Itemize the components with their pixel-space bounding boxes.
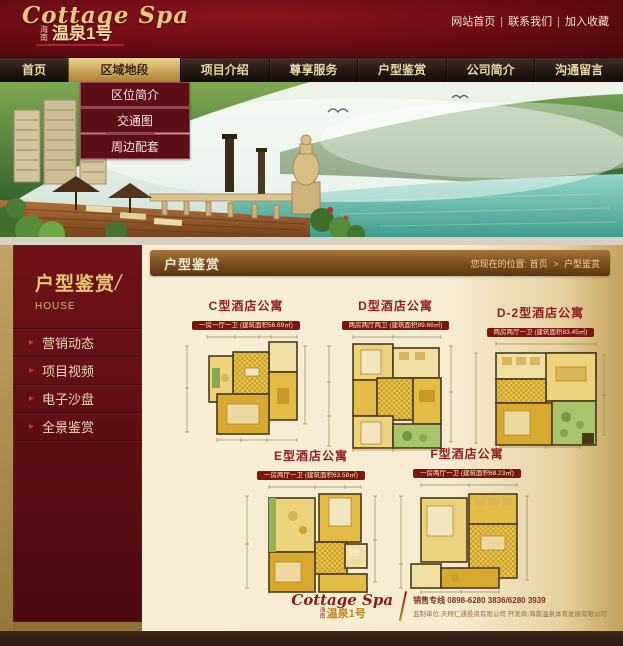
floorplan-f-image[interactable] [397, 480, 537, 596]
site-logo[interactable]: Cottage Spa 海南 温泉1号 [22, 4, 189, 46]
floorplan-card-d: D型酒店公寓 两房两厅两卫 (建筑面积89.66㎡) [322, 297, 469, 454]
page: Cottage Spa 海南 温泉1号 网站首页|联系我们|加入收藏 首页 区域… [0, 0, 623, 646]
breadcrumb-current: 户型鉴赏 [564, 259, 600, 269]
sidebar-title-block: 户型鉴赏/ HOUSE [13, 245, 142, 329]
dropdown-item-area-intro[interactable]: 区位简介 [80, 82, 190, 107]
floorplan-f-title: F型酒店公寓 [396, 445, 538, 462]
floorplan-card-c: C型酒店公寓 一房一厅一卫 (建筑面积56.69㎡) [180, 297, 312, 444]
floorplan-f-subtitle: 一房两厅一卫 (建筑面积68.23㎡) [413, 469, 521, 478]
nav-dropdown-location: 区位简介 交通图 周边配套 [80, 82, 190, 160]
breadcrumb: 您现在的位置: 首页 > 户型鉴赏 [471, 257, 600, 270]
breadcrumb-home[interactable]: 首页 [530, 259, 548, 269]
footer-logo-script: Cottage Spa [291, 593, 393, 608]
footer-logo-name: 温泉1号 [327, 609, 366, 620]
link-favorite[interactable]: 加入收藏 [565, 16, 609, 28]
floorplan-d2-subtitle: 两房两厅一卫 (建筑面积83.45㎡) [487, 328, 595, 337]
floorplan-e-subtitle: 一房两厅一卫 (建筑面积63.58㎡) [257, 471, 365, 480]
nav-item-project[interactable]: 项目介绍 [180, 58, 269, 83]
page-title: 户型鉴赏 [164, 254, 220, 273]
floorplan-d-subtitle: 两房两厅两卫 (建筑面积89.66㎡) [342, 321, 450, 330]
main-nav: 首页 区域地段 项目介绍 尊享服务 户型鉴赏 公司简介 沟通留言 [0, 57, 623, 82]
footer-divider [399, 591, 407, 621]
floorplan-d-title: D型酒店公寓 [322, 297, 469, 314]
nav-item-location[interactable]: 区域地段 [68, 58, 180, 83]
footer-credit: 监制单位:天翔仁通投资有限公司 开发商:海南温泉体育发展有限公司 [413, 608, 607, 618]
floorplan-d2-title: D-2型酒店公寓 [468, 304, 613, 321]
arrow-icon: ▸ [29, 393, 34, 404]
footer-logo: Cottage Spa 海南 温泉1号 [291, 593, 393, 620]
footer-phone: 销售专线 0898-6280 3836/6280 3939 [413, 595, 607, 606]
link-home[interactable]: 网站首页 [451, 16, 495, 28]
content-header: 户型鉴赏 您现在的位置: 首页 > 户型鉴赏 [150, 250, 610, 276]
dropdown-item-surroundings[interactable]: 周边配套 [80, 134, 190, 159]
floorplan-c-subtitle: 一房一厅一卫 (建筑面积56.69㎡) [192, 321, 300, 330]
nav-item-home[interactable]: 首页 [0, 58, 68, 83]
sidebar-item-video[interactable]: ▸ 项目视频 [13, 357, 142, 385]
sidebar-title: 户型鉴赏 [35, 274, 115, 295]
breadcrumb-prefix: 您现在的位置: [471, 259, 528, 269]
floorplan-e-image[interactable] [241, 482, 381, 596]
footer-text: 销售专线 0898-6280 3836/6280 3939 监制单位:天翔仁通投… [413, 595, 607, 618]
sidebar-item-label: 营销动态 [42, 333, 94, 352]
footer-info: Cottage Spa 海南 温泉1号 销售专线 0898-6280 3836/… [291, 591, 607, 621]
sidebar-item-label: 电子沙盘 [42, 389, 94, 408]
main-area: 户型鉴赏/ HOUSE ▸ 营销动态 ▸ 项目视频 ▸ 电子沙盘 ▸ 全景鉴赏 … [0, 237, 623, 631]
floorplan-c-title: C型酒店公寓 [180, 297, 312, 314]
sidebar-item-panorama[interactable]: ▸ 全景鉴赏 [13, 413, 142, 441]
floorplan-c-image[interactable] [181, 332, 311, 444]
floorplan-card-d2: D-2型酒店公寓 两房两厅一卫 (建筑面积83.45㎡) [468, 304, 613, 451]
link-separator: | [500, 16, 503, 28]
sidebar-item-sandbox[interactable]: ▸ 电子沙盘 [13, 385, 142, 413]
dropdown-item-traffic-map[interactable]: 交通图 [80, 108, 190, 133]
nav-item-floorplan[interactable]: 户型鉴赏 [357, 58, 446, 83]
floorplan-e-title: E型酒店公寓 [240, 447, 382, 464]
sidebar-item-label: 全景鉴赏 [42, 417, 94, 436]
sidebar-item-label: 项目视频 [42, 361, 94, 380]
logo-underline [36, 44, 124, 46]
nav-item-company[interactable]: 公司简介 [446, 58, 535, 83]
link-contact[interactable]: 联系我们 [508, 16, 552, 28]
topbar-links: 网站首页|联系我们|加入收藏 [451, 13, 609, 29]
arrow-icon: ▸ [29, 337, 34, 348]
logo-prefix: 海南 [40, 26, 50, 42]
left-gold-strip [0, 245, 13, 631]
floorplan-card-e: E型酒店公寓 一房两厅一卫 (建筑面积63.58㎡) [240, 447, 382, 596]
breadcrumb-separator: > [553, 259, 558, 269]
arrow-icon: ▸ [29, 421, 34, 432]
floorplan-d2-image[interactable] [470, 339, 612, 451]
link-separator: | [557, 16, 560, 28]
arrow-icon: ▸ [29, 365, 34, 376]
nav-item-message[interactable]: 沟通留言 [534, 58, 623, 83]
footer-logo-prefix: 海南 [319, 608, 327, 620]
site-header: Cottage Spa 海南 温泉1号 网站首页|联系我们|加入收藏 [0, 0, 623, 57]
sidebar: 户型鉴赏/ HOUSE ▸ 营销动态 ▸ 项目视频 ▸ 电子沙盘 ▸ 全景鉴赏 [13, 245, 142, 622]
floorplan-d-image[interactable] [323, 332, 468, 454]
nav-item-service[interactable]: 尊享服务 [269, 58, 358, 83]
hero-banner: 区位简介 交通图 周边配套 [0, 82, 623, 237]
logo-name: 温泉1号 [52, 25, 112, 42]
bottom-bar [0, 631, 623, 646]
sidebar-title-slash: / [115, 270, 121, 295]
floorplan-card-f: F型酒店公寓 一房两厅一卫 (建筑面积68.23㎡) [396, 445, 538, 596]
sidebar-title-en: HOUSE [35, 301, 76, 312]
sidebar-item-marketing[interactable]: ▸ 营销动态 [13, 329, 142, 357]
